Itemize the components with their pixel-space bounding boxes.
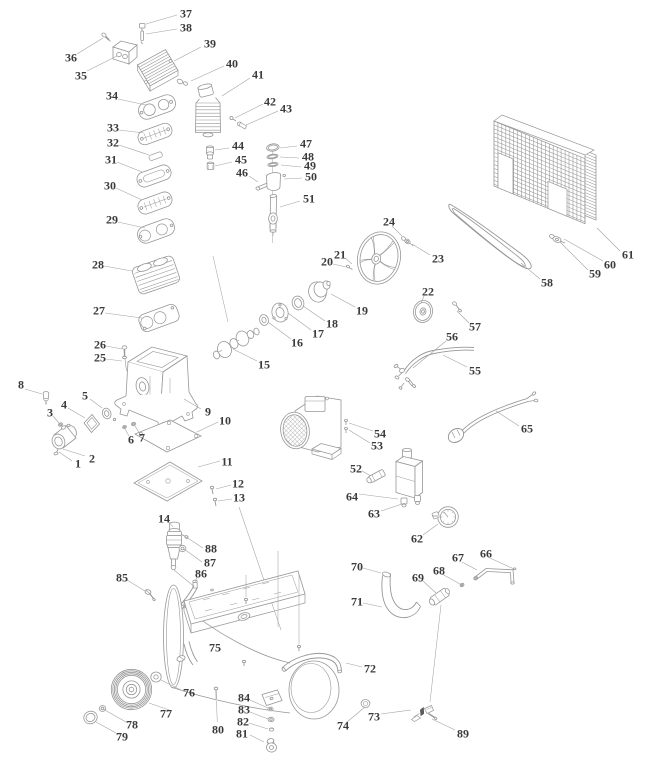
svg-text:10: 10	[219, 414, 231, 428]
svg-text:47: 47	[300, 137, 312, 151]
svg-text:4: 4	[61, 398, 67, 412]
svg-text:9: 9	[205, 405, 211, 419]
svg-text:35: 35	[75, 69, 87, 83]
svg-text:19: 19	[356, 304, 368, 318]
svg-text:37: 37	[180, 7, 192, 21]
svg-text:89: 89	[457, 727, 469, 741]
svg-text:38: 38	[180, 21, 192, 35]
svg-text:51: 51	[303, 192, 315, 206]
svg-text:34: 34	[106, 89, 118, 103]
svg-text:30: 30	[104, 179, 116, 193]
svg-text:31: 31	[105, 153, 117, 167]
svg-text:64: 64	[346, 490, 358, 504]
svg-text:7: 7	[139, 431, 145, 445]
svg-text:84: 84	[238, 691, 250, 705]
svg-text:17: 17	[312, 327, 324, 341]
svg-text:69: 69	[412, 571, 424, 585]
svg-text:81: 81	[236, 727, 248, 741]
svg-text:12: 12	[232, 477, 244, 491]
svg-text:88: 88	[205, 542, 217, 556]
svg-text:67: 67	[452, 551, 464, 565]
svg-text:79: 79	[116, 730, 128, 744]
svg-text:32: 32	[107, 136, 119, 150]
svg-text:1: 1	[75, 457, 81, 471]
svg-text:8: 8	[18, 378, 24, 392]
svg-text:29: 29	[106, 213, 118, 227]
svg-text:27: 27	[93, 304, 105, 318]
svg-text:21: 21	[334, 248, 346, 262]
svg-text:87: 87	[204, 556, 216, 570]
svg-text:13: 13	[233, 491, 245, 505]
svg-text:70: 70	[351, 560, 363, 574]
svg-text:41: 41	[252, 68, 264, 82]
svg-text:25: 25	[94, 351, 106, 365]
svg-text:75: 75	[209, 641, 221, 655]
svg-text:54: 54	[374, 427, 386, 441]
svg-text:71: 71	[351, 595, 363, 609]
svg-text:43: 43	[280, 102, 292, 116]
svg-text:36: 36	[65, 51, 77, 65]
svg-text:52: 52	[350, 462, 362, 476]
svg-text:53: 53	[371, 439, 383, 453]
svg-text:45: 45	[235, 153, 247, 167]
svg-text:15: 15	[258, 358, 270, 372]
svg-text:68: 68	[433, 564, 445, 578]
svg-text:80: 80	[212, 723, 224, 737]
svg-text:18: 18	[326, 317, 338, 331]
svg-text:82: 82	[237, 715, 249, 729]
svg-text:39: 39	[204, 37, 216, 51]
svg-text:58: 58	[541, 276, 553, 290]
svg-text:2: 2	[89, 452, 95, 466]
svg-text:42: 42	[264, 95, 276, 109]
svg-text:66: 66	[480, 547, 492, 561]
svg-text:40: 40	[226, 57, 238, 71]
svg-text:59: 59	[589, 267, 601, 281]
svg-text:11: 11	[221, 455, 232, 469]
svg-text:44: 44	[232, 139, 244, 153]
svg-text:16: 16	[291, 336, 303, 350]
svg-text:56: 56	[446, 330, 458, 344]
svg-text:72: 72	[364, 662, 376, 676]
svg-text:6: 6	[128, 433, 134, 447]
svg-text:57: 57	[469, 320, 481, 334]
svg-text:61: 61	[622, 248, 634, 262]
svg-text:46: 46	[236, 166, 248, 180]
svg-text:22: 22	[422, 285, 434, 299]
svg-text:33: 33	[107, 121, 119, 135]
svg-text:23: 23	[432, 252, 444, 266]
svg-text:83: 83	[238, 703, 250, 717]
svg-text:85: 85	[116, 571, 128, 585]
svg-text:28: 28	[92, 258, 104, 272]
svg-text:62: 62	[411, 532, 423, 546]
svg-text:60: 60	[604, 258, 616, 272]
svg-text:77: 77	[160, 707, 172, 721]
svg-text:63: 63	[368, 507, 380, 521]
svg-text:20: 20	[321, 255, 333, 269]
svg-text:73: 73	[368, 710, 380, 724]
svg-text:26: 26	[94, 338, 106, 352]
svg-text:74: 74	[337, 719, 349, 733]
svg-text:14: 14	[158, 512, 170, 526]
svg-text:55: 55	[469, 364, 481, 378]
svg-text:50: 50	[305, 170, 317, 184]
svg-text:5: 5	[82, 389, 88, 403]
svg-text:65: 65	[521, 422, 533, 436]
svg-text:3: 3	[47, 406, 53, 420]
svg-text:76: 76	[183, 686, 195, 700]
svg-text:24: 24	[383, 215, 395, 229]
